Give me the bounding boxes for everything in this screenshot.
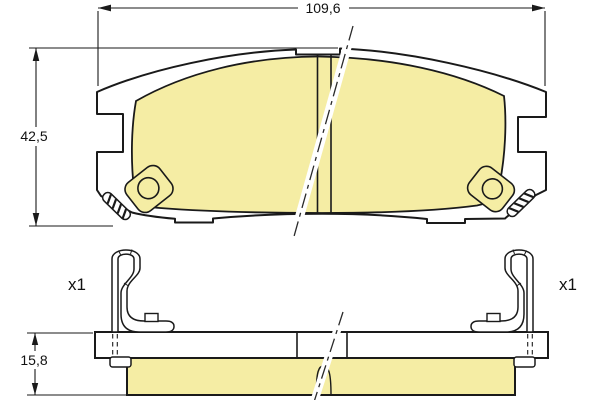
clip-right-foot bbox=[514, 357, 535, 367]
height-dimension-label: 42,5 bbox=[20, 128, 47, 144]
backing-plate-side bbox=[95, 332, 548, 358]
arrow-height-top bbox=[33, 48, 40, 61]
arrow-width-right bbox=[532, 5, 545, 12]
clip-left-lug bbox=[145, 314, 158, 322]
arrow-height-bottom bbox=[33, 213, 40, 226]
thickness-dimension-label: 15,8 bbox=[20, 352, 47, 368]
technical-drawing-canvas: 109,6 42,5 15,8 x1 x1 bbox=[0, 0, 600, 400]
spring-clip-left-body bbox=[112, 250, 174, 332]
clip-quantity-right-label: x1 bbox=[559, 275, 577, 294]
arrow-thickness-bottom bbox=[32, 383, 38, 395]
arrow-thickness-top bbox=[32, 333, 38, 345]
spring-clip-right-body bbox=[471, 250, 533, 332]
clip-right-lug bbox=[487, 314, 500, 322]
clip-quantity-left-label: x1 bbox=[68, 275, 86, 294]
clip-left-foot bbox=[110, 357, 131, 367]
side-view bbox=[95, 250, 548, 400]
width-dimension-label: 109,6 bbox=[305, 0, 340, 16]
brake-pad-drawing: 109,6 42,5 15,8 x1 x1 bbox=[0, 0, 600, 400]
arrow-width-left bbox=[98, 5, 111, 12]
front-view bbox=[97, 26, 546, 240]
